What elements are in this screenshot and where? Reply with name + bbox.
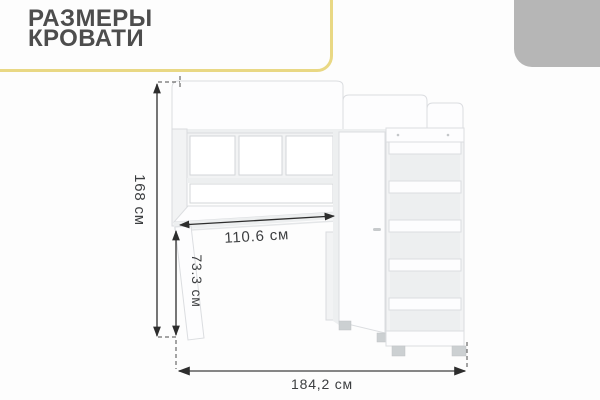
wardrobe-foot-left (339, 321, 351, 330)
ladder-step-1 (389, 142, 461, 154)
ladder-step-5 (389, 298, 461, 310)
wardrobe-handle (373, 228, 381, 231)
bed-headboard-panel (172, 81, 343, 132)
desk-height-dimension-label: 73.3 см (189, 254, 205, 307)
desk-width-dimension-label: 110.6 см (224, 226, 290, 247)
cubby-mid-rail (187, 178, 336, 183)
ladder-step-4 (389, 259, 461, 271)
desk-right-support (326, 232, 334, 320)
width-dimension-label: 184,2 см (291, 376, 353, 392)
wardrobe-door (339, 132, 385, 333)
bed-mid-rail-panel (343, 95, 427, 132)
loft-bed-illustration (172, 81, 466, 356)
cubby-opening-1 (190, 136, 235, 175)
screw-right (447, 134, 450, 137)
ladder-foot-right (452, 346, 466, 356)
infographic-canvas: РАЗМЕРЫКРОВАТИ (0, 0, 600, 400)
height-dimension-label: 168 см (131, 174, 148, 226)
hutch-wide-opening (190, 184, 333, 203)
ladder-step-2 (389, 181, 461, 193)
bed-dimensions-diagram: 168 см 110.6 см 73.3 см 184,2 см (0, 0, 600, 400)
wardrobe-side-edge (333, 132, 339, 325)
ladder-step-3 (389, 220, 461, 232)
screw-left (397, 134, 400, 137)
ladder-foot-left (392, 346, 405, 356)
cubby-opening-3 (286, 136, 333, 175)
ladder-bottom-rail (386, 331, 464, 346)
cubby-opening-2 (239, 136, 282, 175)
